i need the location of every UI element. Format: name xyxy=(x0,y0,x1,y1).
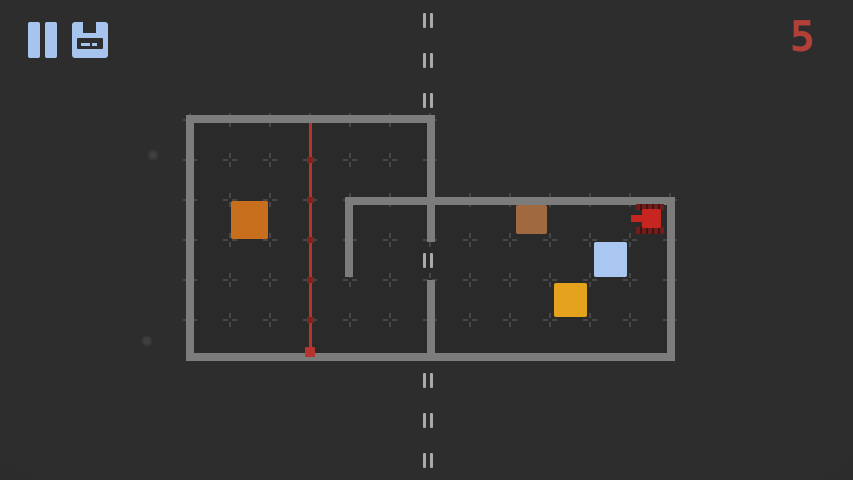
game-stage: 5 xyxy=(0,0,853,480)
pause-bar xyxy=(45,22,57,58)
save-icon xyxy=(72,22,108,58)
wall xyxy=(345,197,675,205)
orange-box xyxy=(231,201,268,239)
level-canvas xyxy=(0,0,853,480)
lives-counter: 5 xyxy=(790,16,815,58)
trail-end-dot xyxy=(305,347,315,357)
wall xyxy=(427,280,435,361)
trail-node xyxy=(307,317,314,323)
wall xyxy=(186,115,194,361)
yellow-box xyxy=(554,283,587,317)
wall xyxy=(186,115,435,123)
tank-body xyxy=(642,209,661,228)
dash-mark xyxy=(423,373,426,388)
dash-mark xyxy=(430,13,433,28)
dash-mark xyxy=(430,253,433,268)
save-button[interactable] xyxy=(72,22,108,58)
particle xyxy=(149,151,157,159)
wall xyxy=(667,197,675,361)
brown-box xyxy=(516,205,547,234)
dash-mark xyxy=(423,413,426,428)
pause-button[interactable] xyxy=(28,22,57,58)
dash-mark xyxy=(423,453,426,468)
dash-mark xyxy=(423,13,426,28)
trail-node xyxy=(307,277,314,283)
particle xyxy=(143,337,151,345)
dash-mark xyxy=(430,93,433,108)
dash-mark xyxy=(430,413,433,428)
tank-tread-bottom xyxy=(636,227,664,234)
pause-icon xyxy=(28,22,57,58)
dash-mark xyxy=(430,453,433,468)
trail-node xyxy=(307,157,314,163)
trail-node xyxy=(307,197,314,203)
trail-node xyxy=(307,237,314,243)
wall xyxy=(345,197,353,277)
dash-mark xyxy=(423,53,426,68)
wall xyxy=(427,115,435,242)
dash-mark xyxy=(430,373,433,388)
dash-mark xyxy=(423,93,426,108)
blue-box xyxy=(594,242,627,277)
pause-bar xyxy=(28,22,40,58)
dash-mark xyxy=(430,53,433,68)
dash-mark xyxy=(423,253,426,268)
